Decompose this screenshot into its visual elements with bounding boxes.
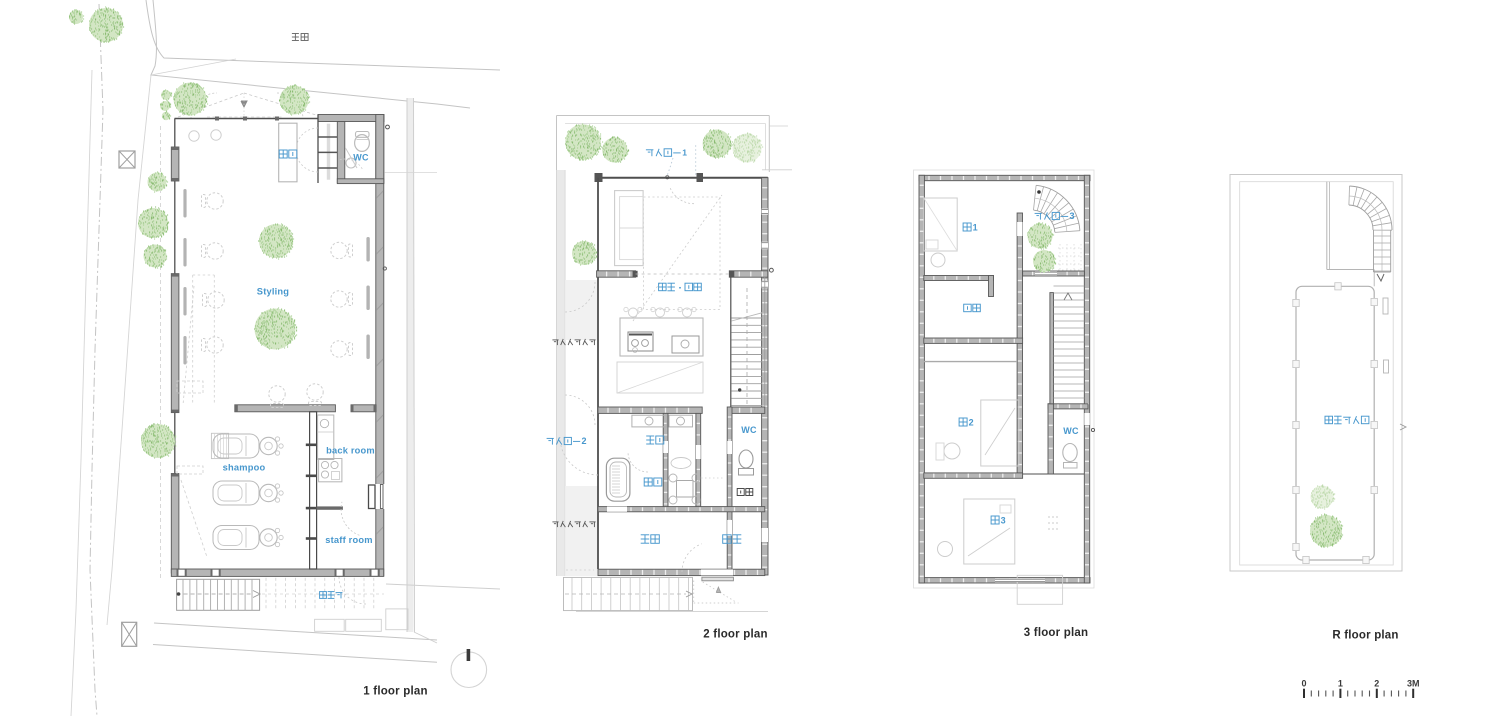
svg-text:0: 0 — [1301, 679, 1306, 689]
svg-text:back room: back room — [326, 446, 375, 456]
svg-text:2: 2 — [969, 417, 974, 427]
svg-text:R floor plan: R floor plan — [1332, 629, 1398, 641]
svg-text:staff room: staff room — [325, 535, 372, 545]
svg-text:1: 1 — [973, 222, 978, 232]
svg-text:Styling: Styling — [257, 286, 290, 296]
svg-text:3: 3 — [1069, 211, 1074, 221]
svg-text:2: 2 — [1374, 679, 1379, 689]
svg-text:3 floor plan: 3 floor plan — [1024, 627, 1088, 639]
svg-text:2: 2 — [581, 436, 586, 446]
svg-text:WC: WC — [741, 425, 757, 435]
svg-text:1: 1 — [1338, 679, 1343, 689]
svg-text:WC: WC — [353, 152, 369, 162]
svg-text:3M: 3M — [1407, 679, 1420, 689]
svg-text:WC: WC — [1063, 426, 1079, 436]
svg-text:1: 1 — [682, 148, 687, 158]
svg-text:shampoo: shampoo — [223, 462, 266, 472]
svg-text:3: 3 — [1001, 515, 1006, 525]
svg-text:1 floor plan: 1 floor plan — [363, 685, 427, 697]
svg-text:2 floor plan: 2 floor plan — [703, 628, 767, 640]
